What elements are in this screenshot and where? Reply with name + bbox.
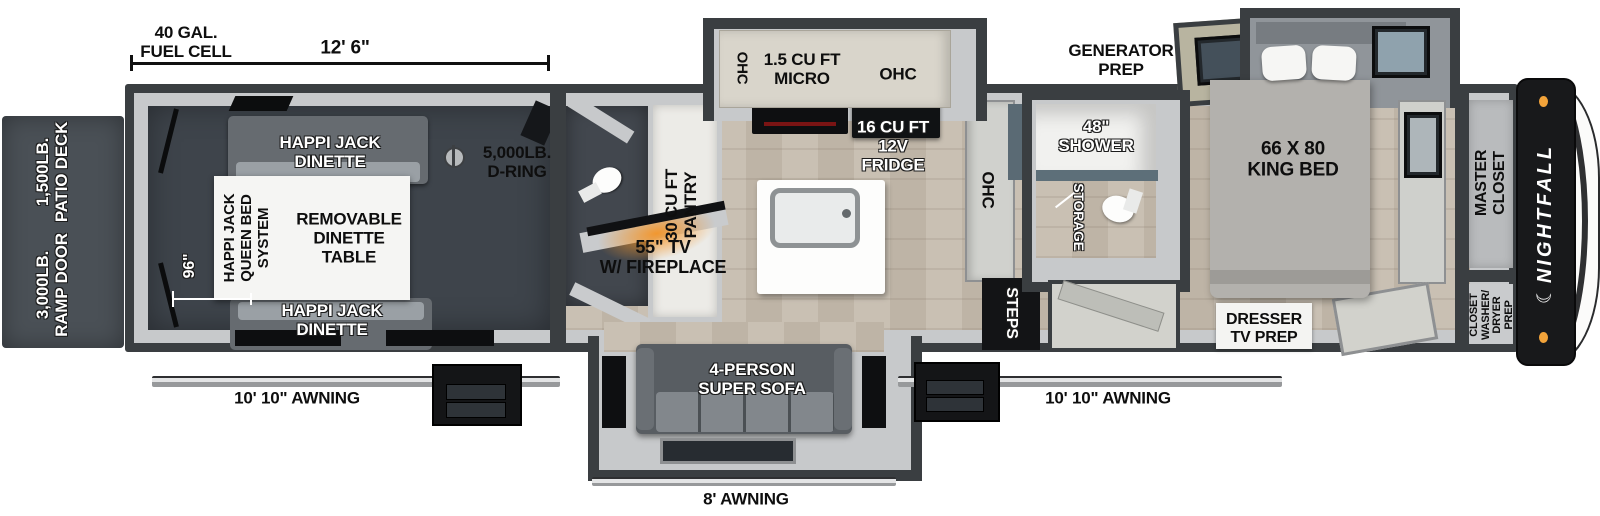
- closet-divider-wall: [1455, 270, 1513, 282]
- master-closet-label: MASTER CLOSET: [1473, 150, 1509, 216]
- slideout-rear-window: [660, 438, 796, 464]
- pillow-right: [1311, 45, 1357, 81]
- storage-label: STORAGE: [1070, 183, 1086, 251]
- garage-dimension-line: [130, 62, 550, 65]
- d-ring-label: 5,000LB. D-RING: [483, 143, 551, 181]
- closet-partition-wall: [1455, 93, 1469, 343]
- king-bed-label: 66 X 80 KING BED: [1247, 139, 1338, 182]
- fuel-cell-label: 40 GAL. FUEL CELL: [140, 23, 231, 61]
- dinette-table-label: REMOVABLE DINETTE TABLE: [296, 209, 402, 266]
- shower-label: 48" SHOWER: [1058, 117, 1133, 155]
- bedroom-bump-window-glass: [1378, 32, 1424, 72]
- slideout-window-right: [862, 356, 886, 428]
- slideout-window-left: [602, 356, 626, 428]
- island-sink: [770, 188, 860, 248]
- bedroom-side-window-glass: [1410, 118, 1436, 172]
- island-faucet: [842, 209, 851, 218]
- bedroom-side-window: [1404, 112, 1442, 178]
- floorplan: 1,500LB. PATIO DECK 3,000LB. RAMP DOOR 4…: [0, 0, 1600, 516]
- tv-fireplace-label: 55" TV W/ FIREPLACE: [600, 237, 727, 277]
- ohc-wall-label: OHC: [978, 171, 997, 208]
- sofa-arm-right: [834, 348, 852, 430]
- sofa-label: 4-PERSON SUPER SOFA: [698, 360, 806, 398]
- dim-tick-left: [130, 55, 133, 71]
- kitchen-counter-end: [1008, 104, 1022, 180]
- dim-tick-right: [547, 55, 550, 71]
- ohc-right-label: OHC: [879, 64, 916, 83]
- pillow-left: [1261, 45, 1307, 82]
- d-ring-icon-pin: [452, 145, 455, 168]
- cooktop-knobs: [764, 122, 836, 126]
- steps-label: STEPS: [1002, 287, 1020, 338]
- ohc-left-label: OHC: [733, 52, 750, 85]
- roof-vent: [229, 96, 294, 111]
- sofa-arm-left: [636, 348, 654, 430]
- generator-prep-label: GENERATOR PREP: [1068, 41, 1173, 79]
- dinette-bottom-label: HAPPI JACK DINETTE: [282, 301, 383, 339]
- bath-counter: [1036, 170, 1158, 181]
- marker-light-bottom: [1539, 332, 1548, 343]
- garage-partition-wall: [550, 93, 566, 343]
- bathroom-floor: [1036, 176, 1156, 258]
- awning-rear-label: 8' AWNING: [703, 489, 789, 508]
- generator-box-window-glass: [1201, 41, 1243, 80]
- garage-width-label: 96": [181, 254, 199, 279]
- brand-logo: ☾NIGHTFALL: [1534, 144, 1556, 304]
- garage-width-line: [172, 298, 252, 300]
- brand-name: NIGHTFALL: [1534, 144, 1556, 283]
- garage-width-tick-left: [172, 291, 174, 307]
- awning-left-label: 10' 10" AWNING: [234, 388, 360, 407]
- dinette-top-label: HAPPI JACK DINETTE: [280, 133, 381, 171]
- fridge-label: 16 CU FT 12V FRIDGE: [857, 117, 929, 174]
- awning-rail-rear: [592, 477, 896, 486]
- queen-bed-system-label: HAPPI JACK QUEEN BED SYSTEM: [222, 194, 272, 283]
- garage-window-right: [386, 330, 494, 346]
- garage-length-label: 12' 6": [320, 37, 369, 58]
- micro-label: 1.5 CU FT MICRO: [764, 50, 841, 88]
- king-bed: [1210, 80, 1370, 298]
- king-bed-foot-band: [1210, 270, 1370, 284]
- dresser-label: DRESSER TV PREP: [1226, 311, 1302, 347]
- ramp-door-label: 3,000LB. RAMP DOOR: [33, 205, 71, 365]
- entry-steps-left: [432, 364, 522, 426]
- garage-width-tick-right: [250, 293, 252, 305]
- crescent-icon: ☾: [1534, 283, 1556, 304]
- marker-light-top: [1539, 96, 1548, 107]
- pantry-label: 30 CU FT PANTRY: [662, 169, 700, 241]
- awning-right-label: 10' 10" AWNING: [1045, 388, 1171, 407]
- bedroom-bump-window: [1372, 26, 1430, 78]
- entry-steps-right: [914, 362, 1000, 422]
- washer-dryer-label: CLOSET WASHER/ DRYER PREP: [1469, 290, 1515, 340]
